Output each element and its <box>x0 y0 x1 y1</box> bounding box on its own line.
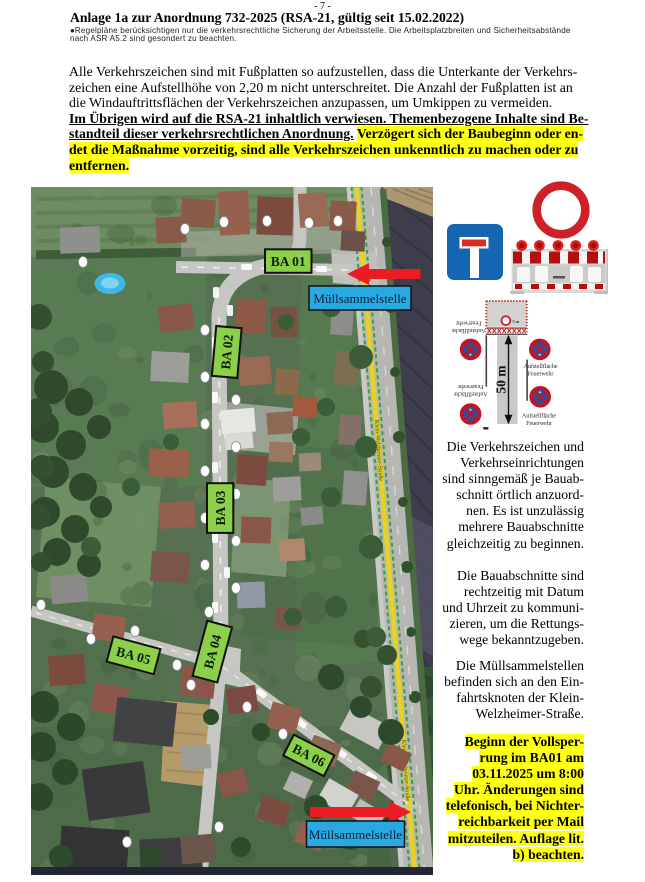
svg-text:5 m: 5 m <box>513 319 520 324</box>
svg-text:Müllsammelstelle: Müllsammelstelle <box>313 291 406 306</box>
svg-text:Aufstellfläche: Aufstellfläche <box>524 363 558 370</box>
svg-text:Aufstellfläche: Aufstellfläche <box>453 391 487 398</box>
svg-text:BA 02: BA 02 <box>218 334 236 370</box>
svg-text:Feuerwehr: Feuerwehr <box>528 372 554 378</box>
svg-text:50 m: 50 m <box>494 365 509 394</box>
svg-text:Feuerwehr: Feuerwehr <box>458 383 484 389</box>
svg-text:BA 03: BA 03 <box>213 490 228 525</box>
svg-text:Feuerwehr: Feuerwehr <box>526 421 552 427</box>
svg-text:Müllsammelstelle: Müllsammelstelle <box>309 827 402 842</box>
svg-text:Feuerwehr: Feuerwehr <box>456 320 482 326</box>
svg-text:Aufstellfläche: Aufstellfläche <box>522 413 556 420</box>
svg-text:Aufstellfläche: Aufstellfläche <box>451 327 485 334</box>
svg-text:BA 01: BA 01 <box>271 254 306 269</box>
